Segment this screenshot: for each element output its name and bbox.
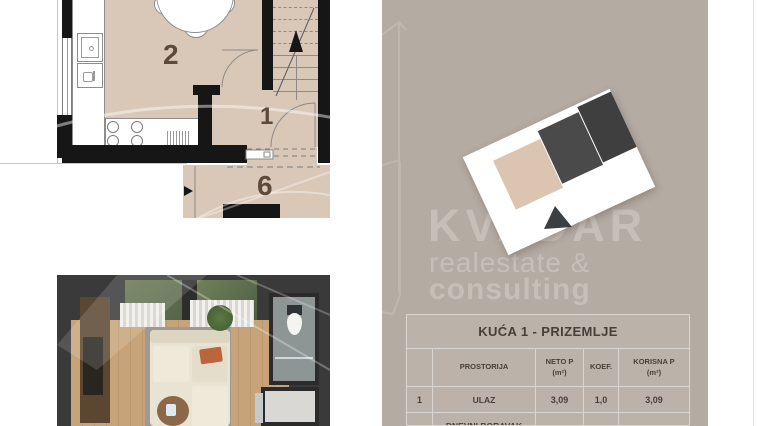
table-title: KUĆA 1 - PRIZEMLJE: [407, 315, 689, 348]
area-table: KUĆA 1 - PRIZEMLJE PROSTORIJA NETO P (m²…: [406, 314, 690, 426]
stairs-up-arrow-icon: [289, 30, 303, 52]
row-room: DNEVNI BORAVAK: [433, 413, 535, 426]
plan-annotations-svg: [0, 0, 380, 230]
row-room: ULAZ: [433, 387, 535, 412]
north-arrow-icon: [542, 203, 576, 233]
room-label-6: 6: [257, 172, 273, 200]
col-header-neto-unit: (m²): [552, 368, 566, 378]
col-header-korisna-unit: (m²): [647, 368, 661, 378]
row-koef: 1,0: [584, 387, 618, 412]
floor-plan-3d-render: [57, 275, 330, 426]
watermark-line3: consulting: [429, 275, 591, 305]
row-korisna: [619, 413, 689, 426]
room-label-1: 1: [260, 105, 273, 129]
row-neto: 3,09: [536, 387, 583, 412]
row-neto: [536, 413, 583, 426]
page-edge-line: [753, 0, 754, 426]
col-header-koef: KOEF.: [584, 349, 618, 386]
info-panel: KVADAR realestate & consulting KUĆA 1 - …: [382, 0, 708, 426]
logo-cube-wireframe-icon: [382, 0, 422, 330]
col-header-neto: NETO P (m²): [536, 349, 583, 386]
row-num: 1: [407, 387, 432, 412]
floor-plan-2d: 2 1 6: [0, 0, 380, 230]
col-header-korisna-line1: KORISNA P: [633, 357, 674, 367]
col-header-neto-line1: NETO P: [546, 357, 574, 367]
room-label-2: 2: [163, 41, 179, 69]
row-korisna: 3,09: [619, 387, 689, 412]
col-header-room: PROSTORIJA: [433, 349, 535, 386]
page: 2 1 6: [0, 0, 757, 426]
render-watermark-lines: [57, 275, 330, 426]
col-header-num: [407, 349, 432, 386]
row-num: [407, 413, 432, 426]
row-koef: [584, 413, 618, 426]
col-header-korisna: KORISNA P (m²): [619, 349, 689, 386]
entry-arrow-icon: [184, 186, 193, 196]
